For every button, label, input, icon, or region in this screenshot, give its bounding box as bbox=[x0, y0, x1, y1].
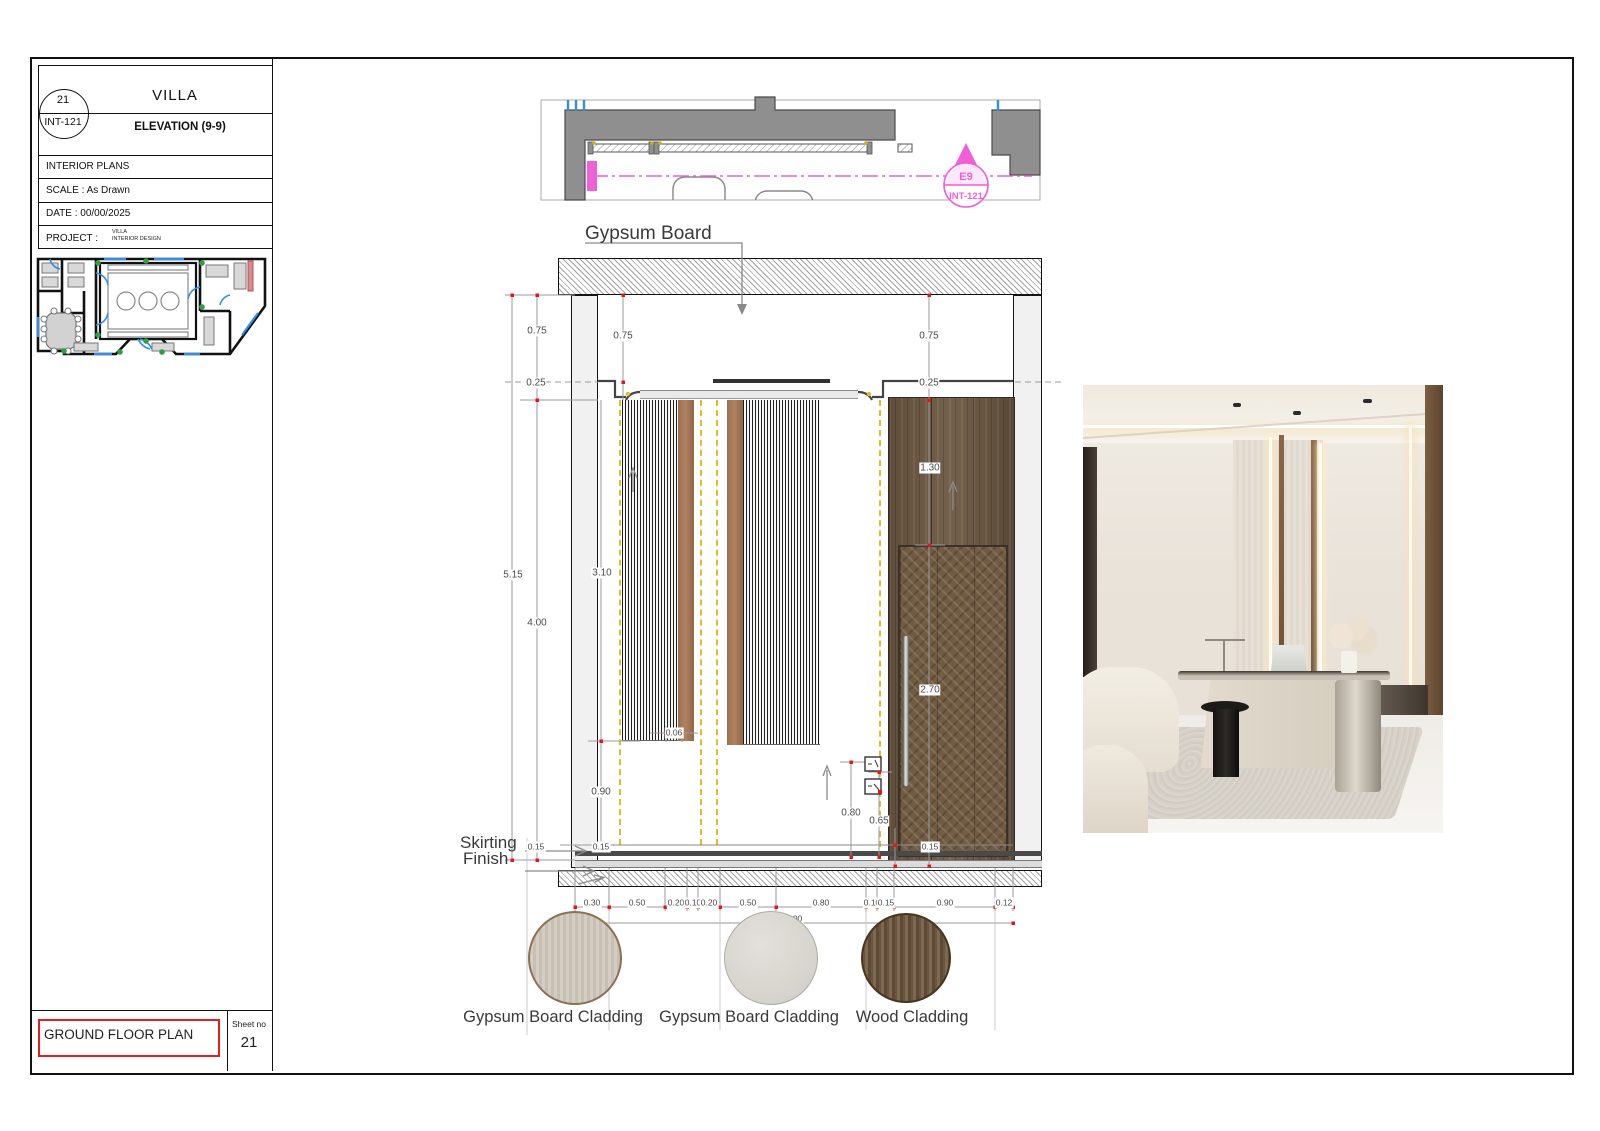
photo-spotlight bbox=[1363, 399, 1372, 403]
photo-flowers bbox=[1325, 617, 1377, 655]
material-label: Wood Cladding bbox=[856, 1008, 969, 1027]
interior-render-photo bbox=[1083, 385, 1443, 833]
material-swatch-gypsum-1 bbox=[528, 911, 622, 1005]
photo-lamp-stem bbox=[1223, 639, 1225, 671]
photo-led-strip bbox=[1269, 437, 1272, 687]
material-label: Gypsum Board Cladding bbox=[659, 1008, 839, 1027]
drawing-sheet: 21 INT-121 VILLA ELEVATION (9-9) INTERIO… bbox=[0, 0, 1600, 1131]
photo-desk-top bbox=[1178, 671, 1390, 680]
photo-led-strip bbox=[1319, 443, 1322, 691]
photo-desk-leg bbox=[1335, 680, 1381, 792]
photo-armchair-2 bbox=[1083, 745, 1148, 833]
material-label: Gypsum Board Cladding bbox=[463, 1008, 643, 1027]
photo-led-strip bbox=[1409, 425, 1412, 725]
material-swatch-gypsum-2 bbox=[724, 911, 818, 1005]
photo-left-doorway bbox=[1083, 447, 1097, 677]
photo-spotlight bbox=[1233, 403, 1241, 407]
material-swatch-wood bbox=[861, 913, 951, 1003]
photo-vase bbox=[1341, 651, 1357, 673]
gypsum-board-label: Gypsum Board bbox=[585, 223, 712, 245]
photo-desk-lamp bbox=[1205, 639, 1245, 641]
photo-spotlight bbox=[1293, 411, 1301, 415]
photo-side-table bbox=[1213, 709, 1239, 777]
finish-label: Finish bbox=[463, 849, 508, 869]
photo-laptop bbox=[1271, 645, 1307, 671]
photo-wood-strip bbox=[1311, 440, 1317, 690]
